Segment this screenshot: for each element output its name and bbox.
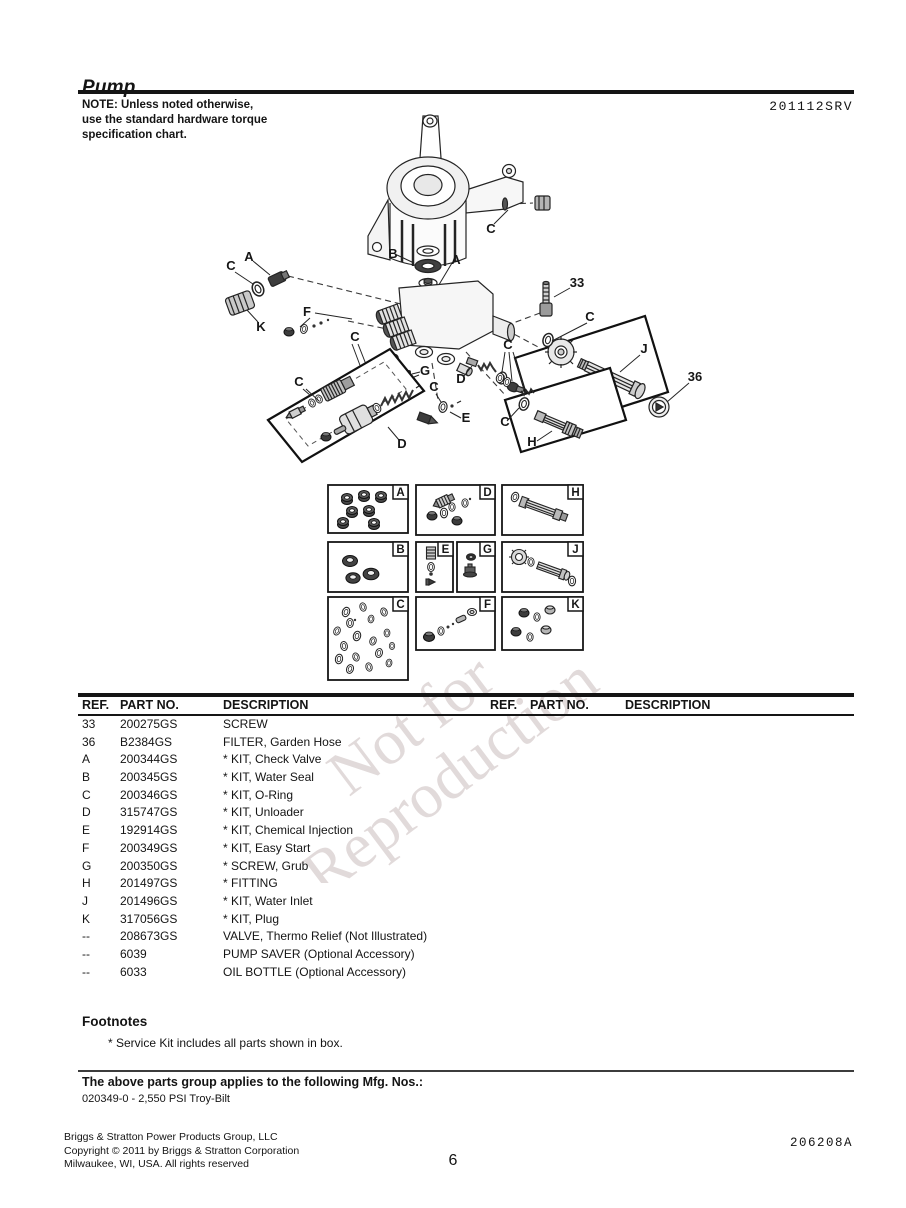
cell-part-no: 201497GS: [120, 875, 177, 893]
header-part-no: PART NO.: [530, 697, 589, 714]
table-row: K317056GS* KIT, Plug: [78, 911, 854, 929]
kit-box-label-C: C: [396, 599, 404, 611]
cell-description: OIL BOTTLE (Optional Accessory): [223, 964, 406, 982]
mfg-number: 020349-0 - 2,550 PSI Troy-Bilt: [82, 1093, 230, 1105]
cell-description: * SCREW, Grub: [223, 858, 308, 876]
cell-ref: H: [82, 875, 91, 893]
cell-part-no: 6033: [120, 964, 147, 982]
kit-box-label-A: A: [396, 487, 404, 499]
kit-box-label-G: G: [483, 544, 492, 556]
cell-description: FILTER, Garden Hose: [223, 734, 342, 752]
table-row: A200344GS* KIT, Check Valve: [78, 751, 854, 769]
cell-description: SCREW: [223, 716, 268, 734]
table-row: F200349GS* KIT, Easy Start: [78, 840, 854, 858]
footnotes: Footnotes * Service Kit includes all par…: [82, 1014, 343, 1050]
table-row: B200345GS* KIT, Water Seal: [78, 769, 854, 787]
cell-description: * KIT, Water Inlet: [223, 893, 313, 911]
callout-H: H: [527, 434, 536, 449]
cell-description: * KIT, Water Seal: [223, 769, 314, 787]
cell-ref: A: [82, 751, 90, 769]
cell-description: * FITTING: [223, 875, 278, 893]
callout-G: G: [420, 363, 430, 378]
cell-ref: E: [82, 822, 90, 840]
cell-ref: F: [82, 840, 89, 858]
callout-K: K: [256, 319, 266, 334]
cell-description: * KIT, Plug: [223, 911, 279, 929]
callout-36: 36: [688, 369, 702, 384]
kit-box-label-E: E: [442, 544, 450, 556]
footnote-item: * Service Kit includes all parts shown i…: [108, 1036, 343, 1050]
cell-ref: J: [82, 893, 88, 911]
callout-B: B: [388, 246, 397, 261]
cell-description: * KIT, Easy Start: [223, 840, 310, 858]
callout-C: C: [226, 258, 236, 273]
parts-table-body: 33200275GSSCREW36B2384GSFILTER, Garden H…: [78, 716, 854, 981]
cell-description: * KIT, Chemical Injection: [223, 822, 353, 840]
mfg-rule: [78, 1070, 854, 1072]
table-row: --208673GSVALVE, Thermo Relief (Not Illu…: [78, 928, 854, 946]
callout-33: 33: [570, 275, 584, 290]
callout-A: A: [244, 249, 254, 264]
cell-ref: B: [82, 769, 90, 787]
manual-page: Pump NOTE: Unless noted otherwise, use t…: [0, 0, 906, 1208]
cell-description: * KIT, Unloader: [223, 804, 304, 822]
header-part-no: PART NO.: [120, 697, 179, 714]
exploded-view-art: [225, 115, 689, 462]
cell-part-no: 200275GS: [120, 716, 177, 734]
callout-C: C: [486, 221, 496, 236]
callout-C: C: [585, 309, 595, 324]
cell-part-no: 200344GS: [120, 751, 177, 769]
kit-box-label-J: J: [572, 544, 578, 556]
cell-description: * KIT, Check Valve: [223, 751, 321, 769]
callout-C: C: [503, 337, 513, 352]
cell-part-no: 200346GS: [120, 787, 177, 805]
header-ref: REF.: [82, 697, 109, 714]
callout-J: J: [640, 341, 647, 356]
callout-F: F: [303, 304, 311, 319]
parts-table: REF. PART NO. DESCRIPTION REF. PART NO. …: [78, 693, 854, 981]
cell-part-no: 200349GS: [120, 840, 177, 858]
cell-description: VALVE, Thermo Relief (Not Illustrated): [223, 928, 427, 946]
kit-box-label-B: B: [396, 544, 404, 556]
callout-A: A: [451, 252, 461, 267]
table-row: H201497GS* FITTING: [78, 875, 854, 893]
table-row: 33200275GSSCREW: [78, 716, 854, 734]
kit-box-label-H: H: [571, 487, 579, 499]
table-row: G200350GS* SCREW, Grub: [78, 858, 854, 876]
header-description: DESCRIPTION: [223, 697, 308, 714]
kit-box-label-F: F: [484, 599, 491, 611]
cell-part-no: B2384GS: [120, 734, 172, 752]
cell-part-no: 200350GS: [120, 858, 177, 876]
cell-ref: D: [82, 804, 91, 822]
page-number: 6: [0, 1152, 906, 1170]
form-number: 206208A: [790, 1136, 853, 1150]
table-row: 36B2384GSFILTER, Garden Hose: [78, 734, 854, 752]
kit-box-label-K: K: [571, 599, 580, 611]
cell-part-no: 208673GS: [120, 928, 177, 946]
cell-ref: C: [82, 787, 91, 805]
table-row: --6033OIL BOTTLE (Optional Accessory): [78, 964, 854, 982]
cell-part-no: 6039: [120, 946, 147, 964]
table-row: C200346GS* KIT, O-Ring: [78, 787, 854, 805]
table-row: D315747GS* KIT, Unloader: [78, 804, 854, 822]
cell-ref: G: [82, 858, 91, 876]
cell-part-no: 200345GS: [120, 769, 177, 787]
cell-ref: --: [82, 964, 90, 982]
cell-ref: K: [82, 911, 90, 929]
cell-description: * KIT, O-Ring: [223, 787, 293, 805]
callout-D: D: [456, 371, 465, 386]
kit-box-label-D: D: [483, 487, 491, 499]
cell-part-no: 315747GS: [120, 804, 177, 822]
cell-ref: --: [82, 946, 90, 964]
cell-part-no: 192914GS: [120, 822, 177, 840]
cell-ref: 36: [82, 734, 95, 752]
cell-part-no: 317056GS: [120, 911, 177, 929]
parts-table-header: REF. PART NO. DESCRIPTION REF. PART NO. …: [78, 693, 854, 716]
callout-C: C: [500, 414, 510, 429]
pump-exploded-diagram: ADHBEGJCFK CBAACKF33CJ36CCGDCCECHD: [0, 0, 906, 690]
cell-part-no: 201496GS: [120, 893, 177, 911]
header-ref: REF.: [490, 697, 517, 714]
cell-ref: --: [82, 928, 90, 946]
cell-description: PUMP SAVER (Optional Accessory): [223, 946, 415, 964]
callout-C: C: [350, 329, 360, 344]
footnotes-heading: Footnotes: [82, 1014, 343, 1029]
publisher-line: Briggs & Stratton Power Products Group, …: [64, 1131, 299, 1145]
mfg-heading: The above parts group applies to the fol…: [82, 1075, 423, 1089]
callout-E: E: [462, 410, 471, 425]
table-row: E192914GS* KIT, Chemical Injection: [78, 822, 854, 840]
callout-C: C: [429, 379, 439, 394]
callout-D: D: [397, 436, 406, 451]
table-row: J201496GS* KIT, Water Inlet: [78, 893, 854, 911]
cell-ref: 33: [82, 716, 95, 734]
header-description: DESCRIPTION: [625, 697, 710, 714]
callout-C: C: [294, 374, 304, 389]
table-row: --6039PUMP SAVER (Optional Accessory): [78, 946, 854, 964]
